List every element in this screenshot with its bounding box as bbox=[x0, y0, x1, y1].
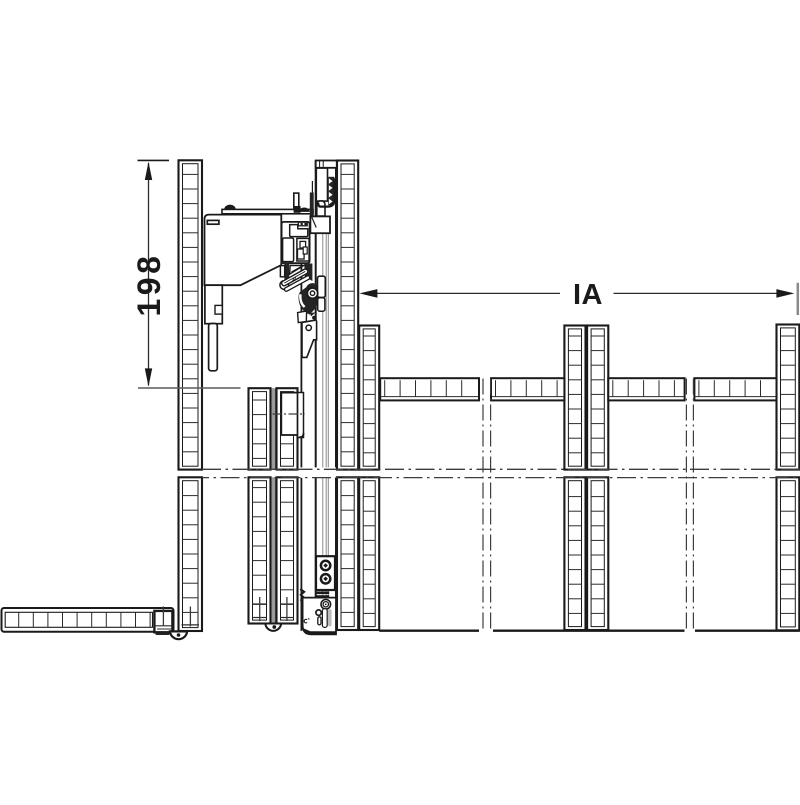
svg-text:198: 198 bbox=[131, 253, 167, 317]
svg-text:IA: IA bbox=[573, 279, 603, 311]
